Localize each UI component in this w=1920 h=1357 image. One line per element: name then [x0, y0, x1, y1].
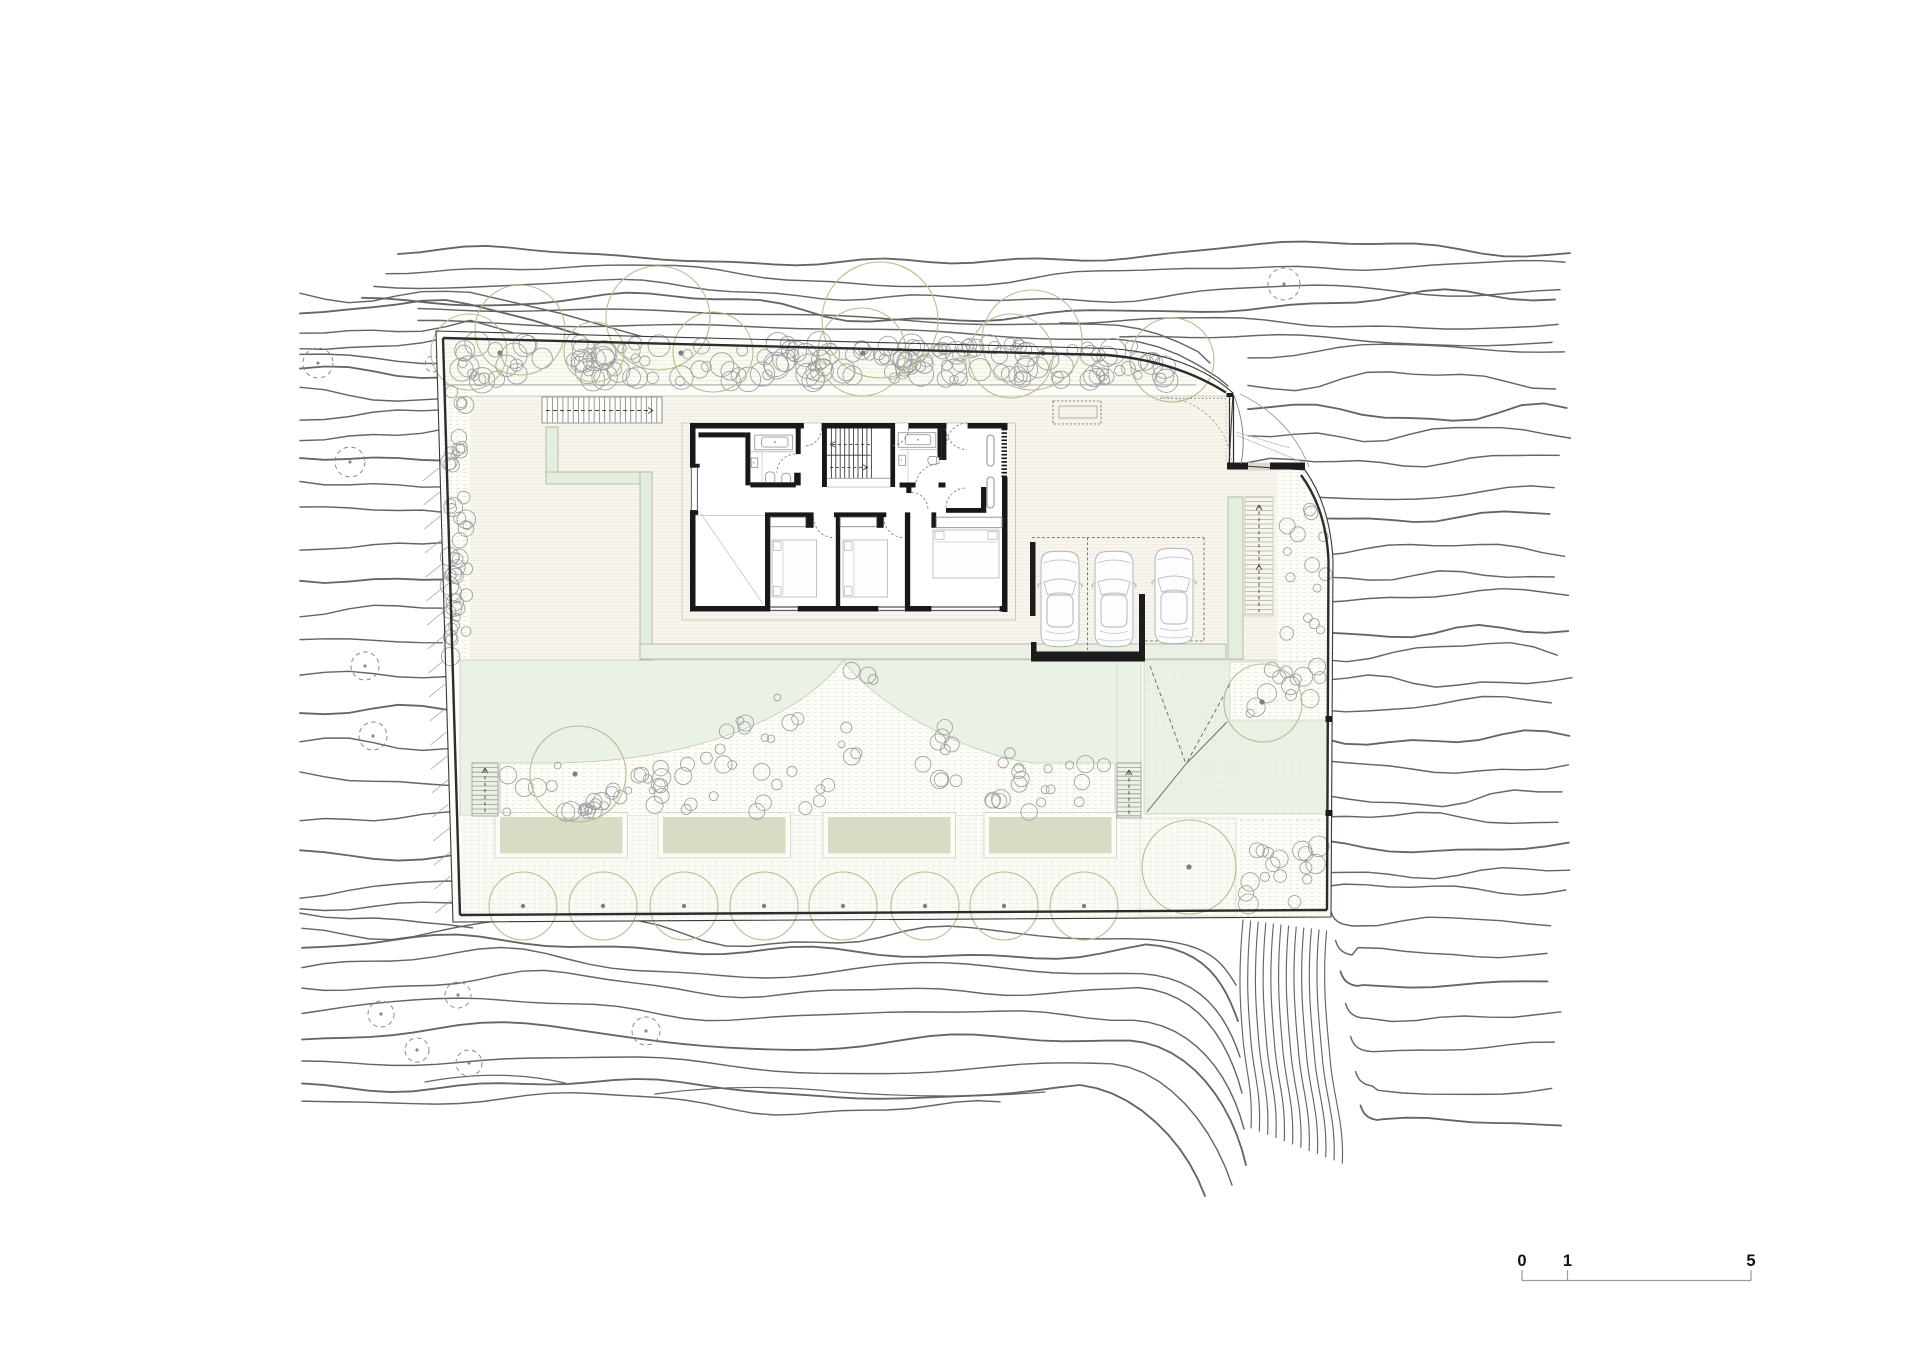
svg-text:0: 0 [1517, 1252, 1526, 1270]
svg-text:1: 1 [1563, 1252, 1572, 1270]
svg-text:5: 5 [1746, 1252, 1755, 1270]
